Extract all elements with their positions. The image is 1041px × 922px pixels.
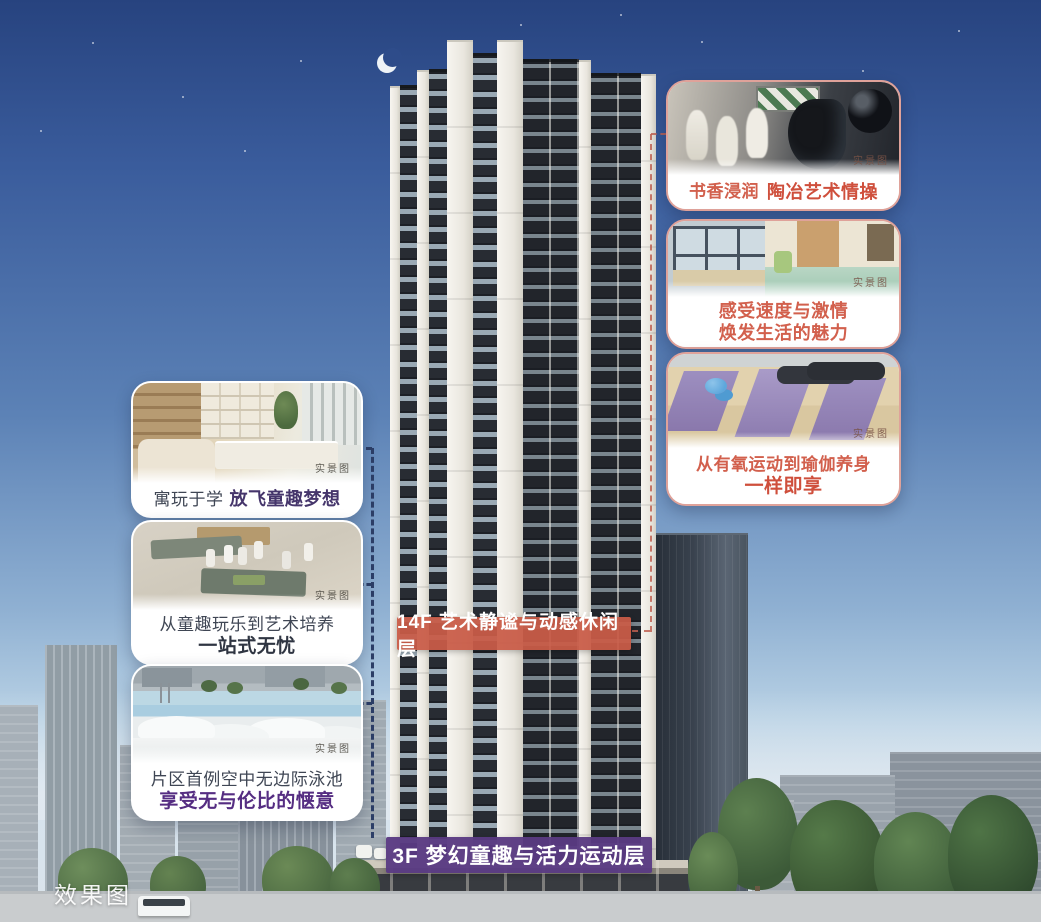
caption-line2: 焕发生活的魅力 bbox=[668, 322, 899, 345]
card-caption: 书香浸润 陶冶艺术情操 bbox=[668, 175, 899, 209]
star-icon bbox=[862, 70, 864, 72]
amenity-card-activity: 实景图 感受速度与激情 焕发生活的魅力 bbox=[666, 219, 901, 349]
infinity-pool-photo: 实景图 bbox=[133, 666, 361, 763]
caption-line1: 从有氧运动到瑜伽养身 bbox=[668, 454, 899, 475]
marketing-poster: 14F 艺术静谧与动感休闲层 3F 梦幻童趣与活力运动层 实景图 寓玩于学 放飞… bbox=[0, 0, 1041, 922]
star-icon bbox=[958, 30, 960, 32]
photo-tag: 实景图 bbox=[853, 274, 889, 289]
amenity-card-art: 实景图 从童趣玩乐到艺术培养 一站式无忧 bbox=[131, 520, 363, 665]
caption-regular: 寓玩于学 bbox=[154, 489, 224, 510]
caption-line1: 从童趣玩乐到艺术培养 bbox=[133, 614, 361, 635]
yoga-room-photo: 实景图 bbox=[668, 354, 899, 448]
chess-room-photo: 实景图 bbox=[668, 82, 899, 175]
tower-pier bbox=[390, 86, 400, 922]
star-icon bbox=[701, 41, 703, 43]
study-room-photo: 实景图 bbox=[133, 383, 361, 483]
floor-3-banner-label: 3F 梦幻童趣与活力运动层 bbox=[392, 840, 645, 870]
card-caption: 从有氧运动到瑜伽养身 一样即享 bbox=[668, 448, 899, 504]
amenity-card-study: 实景图 寓玩于学 放飞童趣梦想 bbox=[131, 381, 363, 518]
tower-core-column bbox=[497, 40, 523, 922]
caption-line1: 感受速度与激情 bbox=[668, 300, 899, 323]
star-icon bbox=[40, 130, 42, 132]
rooftop-cabana bbox=[356, 845, 372, 858]
card-caption: 从童趣玩乐到艺术培养 一站式无忧 bbox=[133, 610, 361, 663]
caption-line2: 一站式无忧 bbox=[133, 635, 361, 659]
card-caption: 片区首例空中无边际泳池 享受无与伦比的惬意 bbox=[133, 763, 361, 819]
caption-line2: 享受无与伦比的惬意 bbox=[133, 790, 361, 814]
tower-core-column bbox=[447, 40, 473, 922]
card-caption: 寓玩于学 放飞童趣梦想 bbox=[133, 483, 361, 516]
right-callout-stub bbox=[651, 133, 666, 135]
tower-pier bbox=[579, 60, 591, 922]
star-icon bbox=[300, 60, 302, 62]
tower-window-strip bbox=[473, 53, 497, 922]
card-caption: 感受速度与激情 焕发生活的魅力 bbox=[668, 297, 899, 347]
caption-bold: 陶冶艺术情操 bbox=[767, 181, 878, 204]
van bbox=[138, 896, 190, 916]
tower-pier bbox=[641, 74, 656, 922]
tower-balcony-strip bbox=[591, 73, 641, 922]
photo-tag: 实景图 bbox=[315, 460, 351, 475]
tower-pier bbox=[417, 70, 429, 922]
star-icon bbox=[182, 96, 184, 98]
tower-window-strip bbox=[429, 69, 447, 922]
caption-regular: 书香浸润 bbox=[689, 181, 759, 202]
right-callout-connector-line bbox=[650, 134, 652, 632]
tower-window-strip bbox=[400, 85, 417, 922]
amenity-card-pool: 实景图 片区首例空中无边际泳池 享受无与伦比的惬意 bbox=[131, 664, 363, 821]
kids-art-table-photo: 实景图 bbox=[133, 522, 361, 610]
floor-14-banner: 14F 艺术静谧与动感休闲层 bbox=[397, 617, 631, 650]
render-type-watermark: 效果图 bbox=[54, 876, 132, 910]
left-callout-connector-line bbox=[371, 448, 374, 838]
star-icon bbox=[244, 150, 246, 152]
activity-room-photo: 实景图 bbox=[668, 221, 899, 297]
photo-tag: 实景图 bbox=[315, 740, 351, 755]
main-tower bbox=[390, 42, 656, 922]
star-icon bbox=[620, 14, 622, 16]
amenity-card-yoga: 实景图 从有氧运动到瑜伽养身 一样即享 bbox=[666, 352, 901, 506]
caption-line2: 一样即享 bbox=[668, 475, 899, 499]
star-icon bbox=[520, 24, 522, 26]
right-callout-stub bbox=[632, 630, 650, 632]
caption-line1: 片区首例空中无边际泳池 bbox=[133, 769, 361, 790]
photo-tag: 实景图 bbox=[853, 152, 889, 167]
city-block bbox=[0, 705, 38, 905]
star-icon bbox=[92, 42, 94, 44]
photo-tag: 实景图 bbox=[853, 425, 889, 440]
photo-tag: 实景图 bbox=[315, 587, 351, 602]
tower-balcony-strip bbox=[523, 59, 579, 922]
amenity-card-chess: 实景图 书香浸润 陶冶艺术情操 bbox=[666, 80, 901, 211]
floor-14-banner-label: 14F 艺术静谧与动感休闲层 bbox=[397, 607, 631, 661]
floor-3-banner: 3F 梦幻童趣与活力运动层 bbox=[386, 837, 652, 873]
caption-bold: 放飞童趣梦想 bbox=[230, 488, 341, 511]
